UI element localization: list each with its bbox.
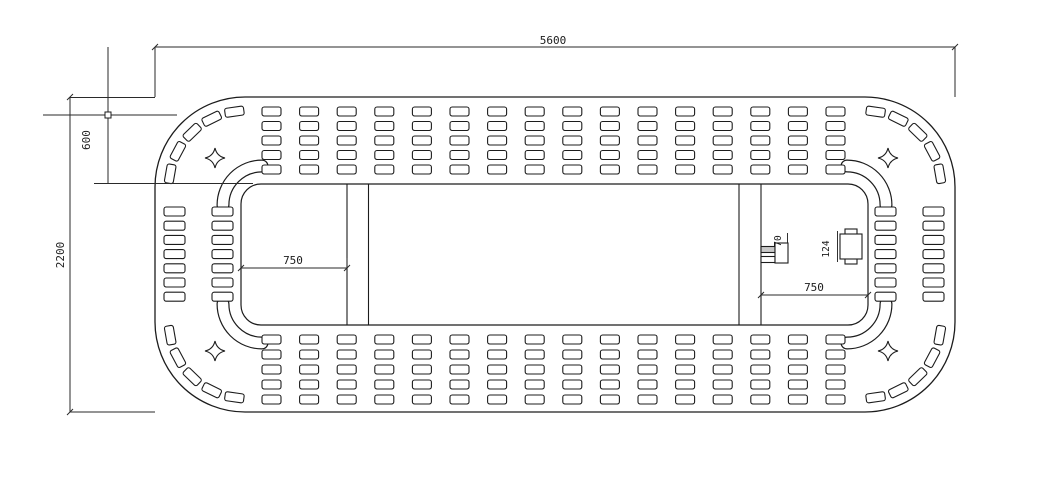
seat-unit — [262, 122, 281, 131]
seat-unit — [488, 335, 507, 344]
dim-label-overall-height: 2200 — [54, 242, 67, 269]
seat-unit — [676, 165, 695, 174]
seat-unit — [337, 380, 356, 389]
seat-unit — [412, 122, 431, 131]
seat-unit — [563, 107, 582, 116]
seat-unit — [337, 136, 356, 145]
seat-unit — [563, 380, 582, 389]
seat-unit — [888, 382, 909, 398]
seat-unit — [337, 350, 356, 359]
seat-unit — [600, 165, 619, 174]
seat-unit — [600, 107, 619, 116]
seat-unit — [713, 136, 732, 145]
seat-unit — [676, 365, 695, 374]
seat-unit — [908, 367, 928, 387]
seat-unit — [300, 395, 319, 404]
seat-unit — [600, 350, 619, 359]
seat-unit — [525, 365, 544, 374]
seat-unit — [751, 107, 770, 116]
seat-unit — [262, 151, 281, 160]
seat-unit — [563, 335, 582, 344]
seat-unit — [525, 107, 544, 116]
seat-unit — [563, 151, 582, 160]
seat-unit — [563, 165, 582, 174]
seat-unit — [713, 165, 732, 174]
seat-unit — [375, 335, 394, 344]
seat-unit — [375, 165, 394, 174]
seat-unit — [713, 122, 732, 131]
star-icon — [205, 341, 225, 361]
seat-unit — [751, 136, 770, 145]
seat-unit — [826, 122, 845, 131]
seat-unit — [300, 380, 319, 389]
seat-unit — [934, 325, 946, 345]
seat-unit — [600, 365, 619, 374]
seat-unit — [751, 380, 770, 389]
seat-unit — [826, 335, 845, 344]
seat-unit — [262, 335, 281, 344]
seat-unit — [638, 350, 657, 359]
seat-unit — [751, 350, 770, 359]
seat-unit — [337, 107, 356, 116]
star-icon — [878, 148, 898, 168]
seat-unit — [412, 350, 431, 359]
seat-unit — [788, 365, 807, 374]
seat-unit — [337, 122, 356, 131]
star-icon — [205, 148, 225, 168]
dim-overall-width — [152, 44, 958, 97]
seat-unit — [450, 151, 469, 160]
seat-unit — [525, 395, 544, 404]
seat-unit — [169, 141, 186, 162]
cad-drawing[interactable]: 5600 2200 600 750 — [0, 0, 1059, 495]
seat-unit — [924, 347, 941, 368]
seat-unit — [751, 122, 770, 131]
seat-unit — [262, 136, 281, 145]
seat-unit — [908, 122, 928, 142]
dim-label-right-bay: 750 — [804, 281, 824, 294]
seat-unit — [262, 165, 281, 174]
seat-unit — [182, 122, 202, 142]
seat-unit — [212, 292, 233, 301]
seat-unit — [337, 151, 356, 160]
seat-unit — [676, 350, 695, 359]
seat-unit — [300, 350, 319, 359]
seat-unit — [713, 151, 732, 160]
seat-unit — [826, 107, 845, 116]
seat-unit — [164, 278, 185, 287]
seat-unit — [563, 136, 582, 145]
seat-unit — [450, 395, 469, 404]
seat-unit — [262, 107, 281, 116]
seat-unit — [676, 335, 695, 344]
seat-unit — [563, 350, 582, 359]
seat-unit — [563, 122, 582, 131]
seat-unit — [164, 250, 185, 259]
seat-unit — [224, 106, 244, 118]
seat-unit — [525, 380, 544, 389]
seat-unit — [412, 395, 431, 404]
seat-unit — [875, 250, 896, 259]
seat-unit — [826, 365, 845, 374]
seat-unit — [450, 107, 469, 116]
seat-unit — [300, 107, 319, 116]
seat-unit — [676, 151, 695, 160]
seat-unit — [488, 380, 507, 389]
seat-unit — [826, 136, 845, 145]
seat-unit — [300, 151, 319, 160]
seat-unit — [212, 221, 233, 230]
seat-unit — [638, 335, 657, 344]
seat-unit — [525, 350, 544, 359]
seat-unit — [212, 207, 233, 216]
seat-unit — [488, 165, 507, 174]
seat-unit — [676, 136, 695, 145]
seat-unit — [488, 151, 507, 160]
seat-unit — [182, 367, 202, 387]
seat-unit — [788, 136, 807, 145]
seat-unit — [300, 165, 319, 174]
seat-unit — [169, 347, 186, 368]
seat-unit — [412, 136, 431, 145]
seat-unit — [826, 350, 845, 359]
seat-unit — [788, 335, 807, 344]
seat-unit — [300, 365, 319, 374]
seat-unit — [924, 141, 941, 162]
seat-unit — [375, 151, 394, 160]
seat-unit — [212, 278, 233, 287]
seat-unit — [866, 106, 886, 118]
seat-unit — [212, 264, 233, 273]
seat-unit — [923, 292, 944, 301]
seat-unit — [788, 380, 807, 389]
seat-unit — [375, 380, 394, 389]
seat-unit — [875, 264, 896, 273]
seat-unit — [875, 292, 896, 301]
seat-unit — [412, 365, 431, 374]
seat-unit — [525, 335, 544, 344]
seat-unit — [600, 122, 619, 131]
dim-label-ring-depth: 600 — [80, 130, 93, 150]
seat-unit — [450, 380, 469, 389]
seat-unit — [375, 107, 394, 116]
seat-unit — [638, 107, 657, 116]
dim-label-left-bay: 750 — [283, 254, 303, 267]
seat-unit — [450, 122, 469, 131]
seat-unit — [751, 335, 770, 344]
seat-unit — [600, 380, 619, 389]
seat-unit — [875, 235, 896, 244]
seat-unit — [713, 107, 732, 116]
seat-unit — [563, 365, 582, 374]
seat-unit — [201, 382, 222, 398]
seat-unit — [525, 151, 544, 160]
seat-unit — [934, 164, 946, 184]
seat-unit — [488, 122, 507, 131]
seat-unit — [751, 365, 770, 374]
seat-unit — [713, 365, 732, 374]
seat-unit — [412, 165, 431, 174]
seat-unit — [300, 335, 319, 344]
seat-unit — [638, 165, 657, 174]
seat-unit — [212, 235, 233, 244]
seat-unit — [412, 335, 431, 344]
seat-unit — [262, 350, 281, 359]
seat-unit — [751, 165, 770, 174]
seat-unit — [488, 395, 507, 404]
seat-unit — [375, 122, 394, 131]
seat-unit — [923, 250, 944, 259]
seat-unit — [224, 392, 244, 404]
seat-unit — [875, 207, 896, 216]
seat-unit — [788, 151, 807, 160]
seat-unit — [300, 122, 319, 131]
seat-unit — [788, 395, 807, 404]
seat-unit — [600, 151, 619, 160]
divider-panels — [347, 184, 761, 325]
seat-unit — [164, 325, 176, 345]
dim-label-overall-width: 5600 — [540, 34, 567, 47]
seat-unit — [164, 164, 176, 184]
seat-unit — [488, 107, 507, 116]
seat-unit — [788, 107, 807, 116]
seat-unit — [826, 395, 845, 404]
seat-unit — [262, 395, 281, 404]
seat-unit — [375, 395, 394, 404]
seat-unit — [638, 395, 657, 404]
seat-unit — [201, 110, 222, 126]
seat-unit — [788, 350, 807, 359]
seat-unit — [888, 110, 909, 126]
seat-unit — [337, 365, 356, 374]
seat-unit — [450, 350, 469, 359]
seat-unit — [713, 350, 732, 359]
seat-unit — [638, 122, 657, 131]
inner-boundary — [241, 184, 868, 325]
dim-label-left-fixture: 70 — [773, 235, 784, 247]
seat-unit — [212, 250, 233, 259]
seat-unit — [488, 350, 507, 359]
seat-unit — [751, 151, 770, 160]
seat-unit — [412, 107, 431, 116]
seat-unit — [164, 235, 185, 244]
seat-unit — [375, 136, 394, 145]
seat-unit — [337, 335, 356, 344]
seat-unit — [713, 395, 732, 404]
seat-unit — [751, 395, 770, 404]
star-point-markers — [205, 148, 898, 361]
dim-label-right-fixture: 124 — [821, 240, 832, 257]
seat-unit — [638, 380, 657, 389]
seat-unit — [164, 292, 185, 301]
seat-unit — [875, 278, 896, 287]
seat-unit — [923, 207, 944, 216]
dim-ring-depth — [43, 47, 253, 184]
seat-unit — [525, 122, 544, 131]
star-icon — [878, 341, 898, 361]
seat-unit — [412, 151, 431, 160]
seat-unit — [923, 235, 944, 244]
seat-unit — [450, 335, 469, 344]
point-marker — [105, 112, 111, 118]
seat-unit — [923, 221, 944, 230]
seat-unit — [713, 380, 732, 389]
seat-unit — [600, 335, 619, 344]
seat-unit — [676, 380, 695, 389]
seat-unit — [412, 380, 431, 389]
seat-unit — [600, 395, 619, 404]
seat-unit — [488, 136, 507, 145]
seat-unit — [875, 221, 896, 230]
seat-unit — [375, 350, 394, 359]
seat-unit — [600, 136, 619, 145]
seat-unit — [164, 207, 185, 216]
seat-unit — [788, 122, 807, 131]
seat-unit — [826, 165, 845, 174]
seat-unit — [525, 165, 544, 174]
seat-unit — [164, 221, 185, 230]
seat-unit — [638, 151, 657, 160]
seat-unit — [676, 122, 695, 131]
seat-unit — [164, 264, 185, 273]
seat-unit — [300, 136, 319, 145]
seat-unit — [337, 165, 356, 174]
cad-viewport[interactable]: 5600 2200 600 750 — [0, 0, 1059, 495]
seat-unit — [638, 136, 657, 145]
seat-unit — [676, 107, 695, 116]
seat-unit — [262, 365, 281, 374]
seat-unit — [450, 365, 469, 374]
seat-unit — [676, 395, 695, 404]
seat-unit — [713, 335, 732, 344]
seat-unit — [866, 392, 886, 404]
seat-unit — [488, 365, 507, 374]
seat-unit — [450, 136, 469, 145]
seat-unit — [525, 136, 544, 145]
seat-unit — [262, 380, 281, 389]
seat-unit — [923, 278, 944, 287]
seat-unit — [375, 365, 394, 374]
seat-unit — [563, 395, 582, 404]
seat-unit — [826, 151, 845, 160]
right-fixture — [838, 229, 863, 264]
seat-unit — [826, 380, 845, 389]
seat-unit — [337, 395, 356, 404]
seat-unit — [638, 365, 657, 374]
seat-unit — [450, 165, 469, 174]
seat-unit — [923, 264, 944, 273]
seat-unit — [788, 165, 807, 174]
